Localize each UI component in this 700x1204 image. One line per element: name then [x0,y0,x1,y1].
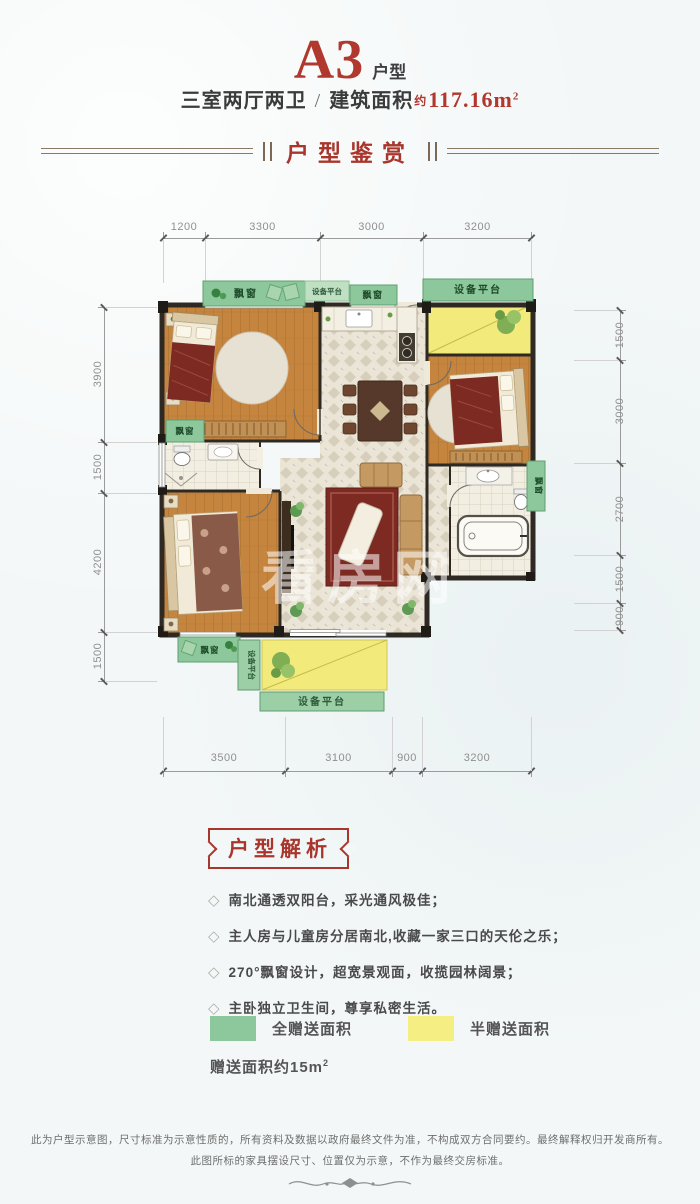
bay-window-right: 飘窗 [527,461,545,511]
dim-label: 3000 [614,389,626,433]
subtitle-separator: / [315,90,322,112]
dim-label: 3200 [422,752,532,764]
analysis-bullet: ◇ 270°飘窗设计，超宽景观面，收揽园林阔景； [208,963,688,982]
bullet-text: 270°飘窗设计，超宽景观面，收揽园林阔景； [229,963,522,982]
half-gift-label: 半赠送面积 [470,1018,550,1039]
dim-label: 900 [392,752,422,764]
area-value: 117.16m [428,87,513,112]
divider-bars-left [263,142,272,161]
full-gift-swatch [210,1016,256,1041]
dim-label: 3500 [163,752,285,764]
bay-window-label: 飘窗 [200,645,219,655]
analysis-section: 户型解析 ◇ 南北通透双阳台，采光通风极佳； ◇ 主人房与儿童房分居南北,收藏一… [208,828,688,1035]
watermark-text: 看房网 [261,546,459,611]
equipment-platform-label: 设备平台 [247,650,257,680]
divider-bars-right [428,142,437,161]
full-gift-label: 全赠送面积 [272,1018,352,1039]
page-title: A3户型 [0,28,700,92]
bay-window-bottom-left: 飘窗 [178,637,240,662]
legend: 全赠送面积 半赠送面积 赠送面积约15m2 [210,1016,650,1077]
equipment-platform-top-1: 设备平台 [305,281,349,301]
bay-window-label: 飘窗 [234,287,258,300]
half-gift-swatch [408,1016,454,1041]
disclaimer-line-1: 此为户型示意图，尺寸标准为示意性质的，所有资料及数据以政府最终文件为准，不构成双… [0,1130,700,1151]
dim-label: 3000 [320,221,423,233]
dim-label: 1500 [92,445,104,489]
bay-window-mid-left: 飘窗 [166,420,204,442]
bay-window-label: 飘窗 [362,289,383,300]
divider-line-left [41,148,253,154]
dim-line [163,238,532,239]
gift-area-note: 赠送面积约15m2 [210,1056,650,1077]
section-divider: 户型鉴赏 [0,134,700,168]
dim-line [163,771,532,772]
unit-subtitle: 三室两厅两卫/建筑面积约117.16m2 [0,84,700,113]
diamond-bullet-icon: ◇ [208,891,220,910]
bullet-text: 南北通透双阳台，采光通风极佳； [229,891,447,910]
dim-label: 3300 [205,221,320,233]
dimension-bottom: 3500 3100 900 3200 [163,750,532,780]
bay-window-top-left: 飘窗 [203,281,305,306]
bedroom-3-furniture [163,495,242,631]
dim-label: 1200 [163,221,205,233]
dim-label: 3900 [92,352,104,396]
divider-line-right [447,148,659,154]
dimension-right: 1500 3000 2700 1500 900 [600,310,644,631]
footer-disclaimer: 此为户型示意图，尺寸标准为示意性质的，所有资料及数据以政府最终文件为准，不构成双… [0,1130,700,1199]
unit-suffix: 户型 [372,63,406,82]
dim-label: 2700 [614,487,626,531]
room-config: 三室两厅两卫 [181,90,307,112]
equipment-platform-bottom: 设备平台 [260,692,384,711]
half-gift-balcony-bottom [262,640,387,690]
equipment-platform-label: 设备平台 [454,283,502,296]
bay-window-label: 飘窗 [534,477,544,495]
half-gift-balcony-top [425,303,533,355]
diamond-bullet-icon: ◇ [208,963,220,982]
equipment-platform-label: 设备平台 [298,695,346,708]
area-label: 建筑面积 [329,90,413,112]
section-title: 户型鉴赏 [286,134,414,168]
note-sup: 2 [323,1058,329,1068]
dim-label: 3200 [423,221,532,233]
area-approx: 约 [414,94,427,108]
dim-label: 1500 [92,634,104,678]
equipment-platform-label: 设备平台 [312,286,342,296]
equipment-platform-top-right: 设备平台 [423,279,533,301]
analysis-bullet: ◇ 南北通透双阳台，采光通风极佳； [208,891,688,910]
floor-plan: 飘窗 设备平台 飘窗 设备平台 飘窗 飘窗 设备平台 设备平台 飘窗 看房网 [150,273,580,718]
flourish-ornament [0,1175,700,1199]
dining-set [343,381,417,441]
area-sup: 2 [513,90,520,102]
dim-label: 4200 [92,540,104,584]
dim-label: 3100 [285,752,392,764]
analysis-bullet: ◇ 主人房与儿童房分居南北,收藏一家三口的天伦之乐； [208,927,688,946]
dim-label: 1500 [614,313,626,357]
disclaimer-line-2: 此图所标的家具摆设尺寸、位置仅为示意，不作为最终交房标准。 [0,1151,700,1172]
analysis-title: 户型解析 [208,828,349,869]
bay-window-top-middle: 飘窗 [350,285,397,305]
legend-row: 全赠送面积 半赠送面积 [210,1016,650,1041]
bullet-text: 主人房与儿童房分居南北,收藏一家三口的天伦之乐； [229,927,567,946]
analysis-bullets: ◇ 南北通透双阳台，采光通风极佳； ◇ 主人房与儿童房分居南北,收藏一家三口的天… [208,891,688,1018]
bay-window-label: 飘窗 [175,426,194,436]
diamond-bullet-icon: ◇ [208,927,220,946]
unit-code: A3 [294,29,364,91]
equipment-platform-vertical: 设备平台 [238,640,260,690]
dimension-left: 3900 1500 4200 1500 [86,307,130,682]
